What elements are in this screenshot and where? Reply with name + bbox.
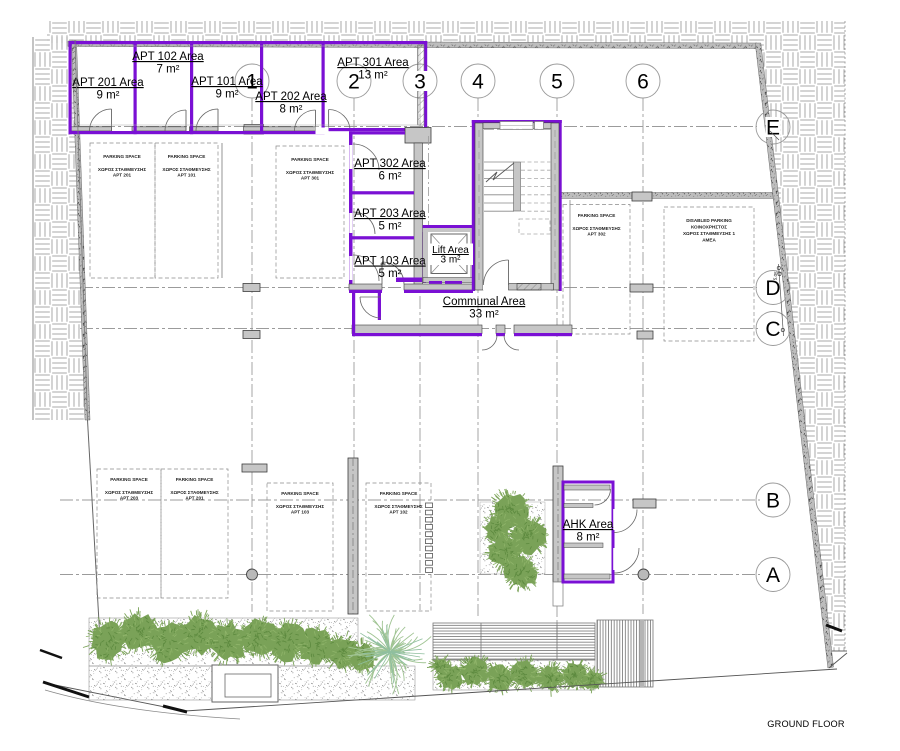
svg-text:APT 302: APT 302: [587, 232, 606, 237]
svg-text:33 m²: 33 m²: [469, 309, 499, 321]
svg-text:9 m²: 9 m²: [97, 90, 120, 102]
svg-text:3 m²: 3 m²: [441, 255, 462, 266]
svg-text:ΧΩΡΟΣ ΣΤΑΘΜΕΥΣΗΣ: ΧΩΡΟΣ ΣΤΑΘΜΕΥΣΗΣ: [162, 167, 210, 172]
svg-text:5: 5: [551, 71, 563, 94]
svg-text:Communal Area: Communal Area: [443, 296, 526, 308]
svg-text:4: 4: [472, 71, 484, 94]
svg-text:ΧΩΡΟΣ ΣΤΑΘΜΕΥΣΗΣ 1: ΧΩΡΟΣ ΣΤΑΘΜΕΥΣΗΣ 1: [683, 231, 735, 236]
svg-text:A: A: [766, 564, 780, 587]
svg-text:APT 202 Area: APT 202 Area: [255, 91, 327, 103]
svg-text:APT 203: APT 203: [120, 496, 139, 501]
svg-text:PARKING SPACE: PARKING SPACE: [281, 491, 319, 496]
svg-text:3: 3: [414, 71, 426, 94]
svg-text:C: C: [765, 318, 780, 341]
svg-text:8 m²: 8 m²: [577, 532, 600, 544]
svg-text:APT 101 Area: APT 101 Area: [191, 76, 263, 88]
svg-text:DISABLED PARKING: DISABLED PARKING: [686, 218, 732, 223]
svg-text:APT 103: APT 103: [291, 510, 310, 515]
svg-text:PARKING SPACE: PARKING SPACE: [168, 154, 206, 159]
svg-text:AHK Area: AHK Area: [563, 519, 614, 531]
svg-text:APT 201: APT 201: [185, 496, 204, 501]
svg-text:APT 102: APT 102: [389, 510, 408, 515]
svg-text:6 m²: 6 m²: [379, 171, 402, 183]
svg-text:ΧΩΡΟΣ ΣΤΑΘΜΕΥΣΗΣ: ΧΩΡΟΣ ΣΤΑΘΜΕΥΣΗΣ: [374, 504, 422, 509]
svg-text:8 m²: 8 m²: [280, 104, 303, 116]
svg-text:PARKING SPACE: PARKING SPACE: [380, 491, 418, 496]
svg-text:APT 101: APT 101: [177, 173, 196, 178]
svg-text:5 m²: 5 m²: [379, 221, 402, 233]
svg-text:PARKING SPACE: PARKING SPACE: [578, 213, 616, 218]
svg-text:APT 103 Area: APT 103 Area: [354, 256, 426, 268]
svg-text:ΧΩΡΟΣ ΣΤΑΘΜΕΥΣΗΣ: ΧΩΡΟΣ ΣΤΑΘΜΕΥΣΗΣ: [286, 170, 334, 175]
svg-text:E: E: [766, 117, 780, 140]
svg-text:PARKING SPACE: PARKING SPACE: [291, 157, 329, 162]
svg-text:PARKING SPACE: PARKING SPACE: [176, 477, 214, 482]
svg-text:APT 201: APT 201: [113, 173, 132, 178]
svg-text:ΧΩΡΟΣ ΣΤΑΘΜΕΥΣΗΣ: ΧΩΡΟΣ ΣΤΑΘΜΕΥΣΗΣ: [98, 167, 146, 172]
svg-text:9 m²: 9 m²: [216, 89, 239, 101]
svg-text:6: 6: [637, 71, 649, 94]
svg-text:7 m²: 7 m²: [157, 64, 180, 76]
svg-text:B: B: [766, 490, 780, 513]
svg-text:APT 302 Area: APT 302 Area: [354, 158, 426, 170]
svg-text:PARKING SPACE: PARKING SPACE: [103, 154, 141, 159]
svg-text:APT 203 Area: APT 203 Area: [354, 208, 426, 220]
svg-text:ΧΩΡΟΣ ΣΤΑΘΜΕΥΣΗΣ: ΧΩΡΟΣ ΣΤΑΘΜΕΥΣΗΣ: [276, 504, 324, 509]
svg-text:ΚΟΙΝΟΧΡΗΣΤΟΣ: ΚΟΙΝΟΧΡΗΣΤΟΣ: [691, 225, 727, 230]
svg-text:APT 301 Area: APT 301 Area: [337, 57, 409, 69]
svg-text:13 m²: 13 m²: [358, 70, 388, 82]
svg-text:ΧΩΡΟΣ ΣΤΑΘΜΕΥΣΗΣ: ΧΩΡΟΣ ΣΤΑΘΜΕΥΣΗΣ: [105, 490, 153, 495]
svg-text:ΧΩΡΟΣ ΣΤΑΘΜΕΥΣΗΣ: ΧΩΡΟΣ ΣΤΑΘΜΕΥΣΗΣ: [170, 490, 218, 495]
svg-text:APT 102 Area: APT 102 Area: [132, 51, 204, 63]
svg-text:ΑΜΕΑ: ΑΜΕΑ: [702, 238, 716, 243]
svg-text:APT 301: APT 301: [301, 176, 320, 181]
svg-text:PARKING SPACE: PARKING SPACE: [110, 477, 148, 482]
svg-text:GROUND FLOOR: GROUND FLOOR: [767, 719, 845, 729]
svg-text:5 m²: 5 m²: [379, 268, 402, 280]
svg-text:APT 201 Area: APT 201 Area: [72, 77, 144, 89]
svg-text:ΧΩΡΟΣ ΣΤΑΘΜΕΥΣΗΣ: ΧΩΡΟΣ ΣΤΑΘΜΕΥΣΗΣ: [572, 226, 620, 231]
